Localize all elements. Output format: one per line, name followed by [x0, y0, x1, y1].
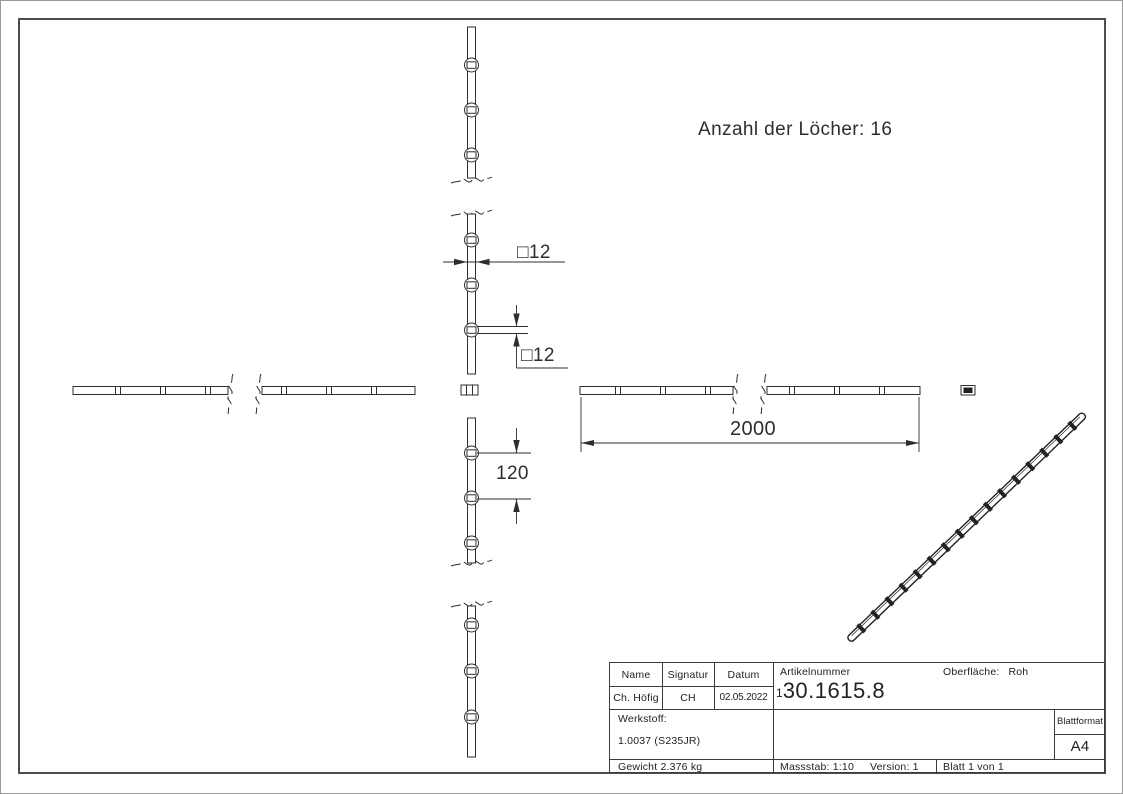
surface-label: Oberfläche:	[943, 666, 999, 678]
date-value: 02.05.2022	[714, 686, 773, 709]
article-number: 1 30.1615.8	[776, 680, 885, 702]
dimension-label-hole: □12	[521, 345, 555, 367]
scale-version-field: Massstab: 1:10 Version: 1	[780, 759, 930, 774]
sheet-format-value: A4	[1054, 734, 1106, 759]
dimension-label-spacing: 120	[496, 463, 529, 485]
side-view-right	[580, 374, 975, 414]
surface-field: Oberfläche: Roh	[943, 665, 1093, 679]
signature-label: Signatur	[662, 663, 714, 686]
isometric-view	[845, 411, 1087, 644]
version-value: Version: 1	[870, 761, 919, 773]
article-label: Artikelnummer	[780, 665, 900, 679]
title-block: Name Signatur Datum Ch. Höfig CH 02.05.2…	[609, 662, 1105, 773]
sheet-format-label: Blattformat	[1054, 709, 1106, 734]
side-view-left	[73, 374, 478, 414]
divider	[936, 759, 937, 774]
divider	[610, 709, 1106, 710]
divider	[773, 663, 774, 774]
frame-border	[19, 19, 1105, 773]
dimension-label-profile: □12	[517, 242, 551, 264]
material-label: Werkstoff:	[618, 712, 768, 726]
date-label: Datum	[714, 663, 773, 686]
hole-count-note: Anzahl der Löcher: 16	[698, 119, 892, 141]
break-line	[256, 374, 261, 414]
break-line	[228, 374, 233, 414]
material-value: 1.0037 (S235JR)	[618, 734, 768, 748]
surface-value: Roh	[1008, 666, 1028, 678]
weight-value: Gewicht 2.376 kg	[618, 759, 768, 774]
dimension-label-length: 2000	[713, 418, 793, 441]
name-value: Ch. Höfig	[610, 686, 662, 709]
break-line	[733, 374, 738, 414]
scale-value: Massstab: 1:10	[780, 761, 854, 773]
drawing-sheet: Anzahl der Löcher: 16 □12 □12 120 2000 N…	[0, 0, 1123, 794]
article-number-main: 30.1615.8	[783, 680, 885, 702]
break-line	[761, 374, 766, 414]
page-value: Blatt 1 von 1	[943, 759, 1103, 774]
name-label: Name	[610, 663, 662, 686]
article-number-prefix: 1	[776, 686, 783, 702]
signature-value: CH	[662, 686, 714, 709]
